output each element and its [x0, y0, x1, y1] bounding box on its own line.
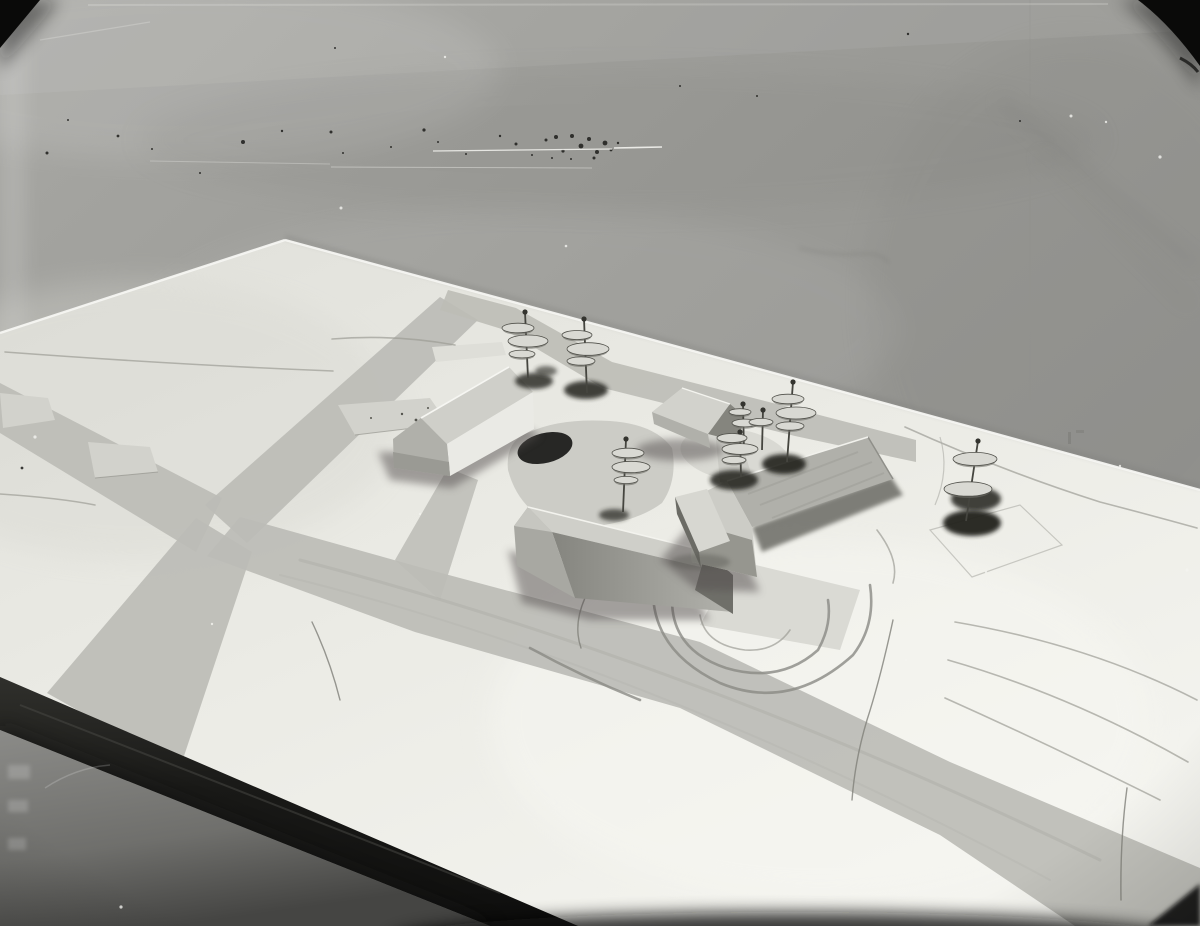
- photo-vignette: [0, 0, 1200, 926]
- photograph: [0, 0, 1200, 926]
- photo-frame: [0, 0, 1200, 926]
